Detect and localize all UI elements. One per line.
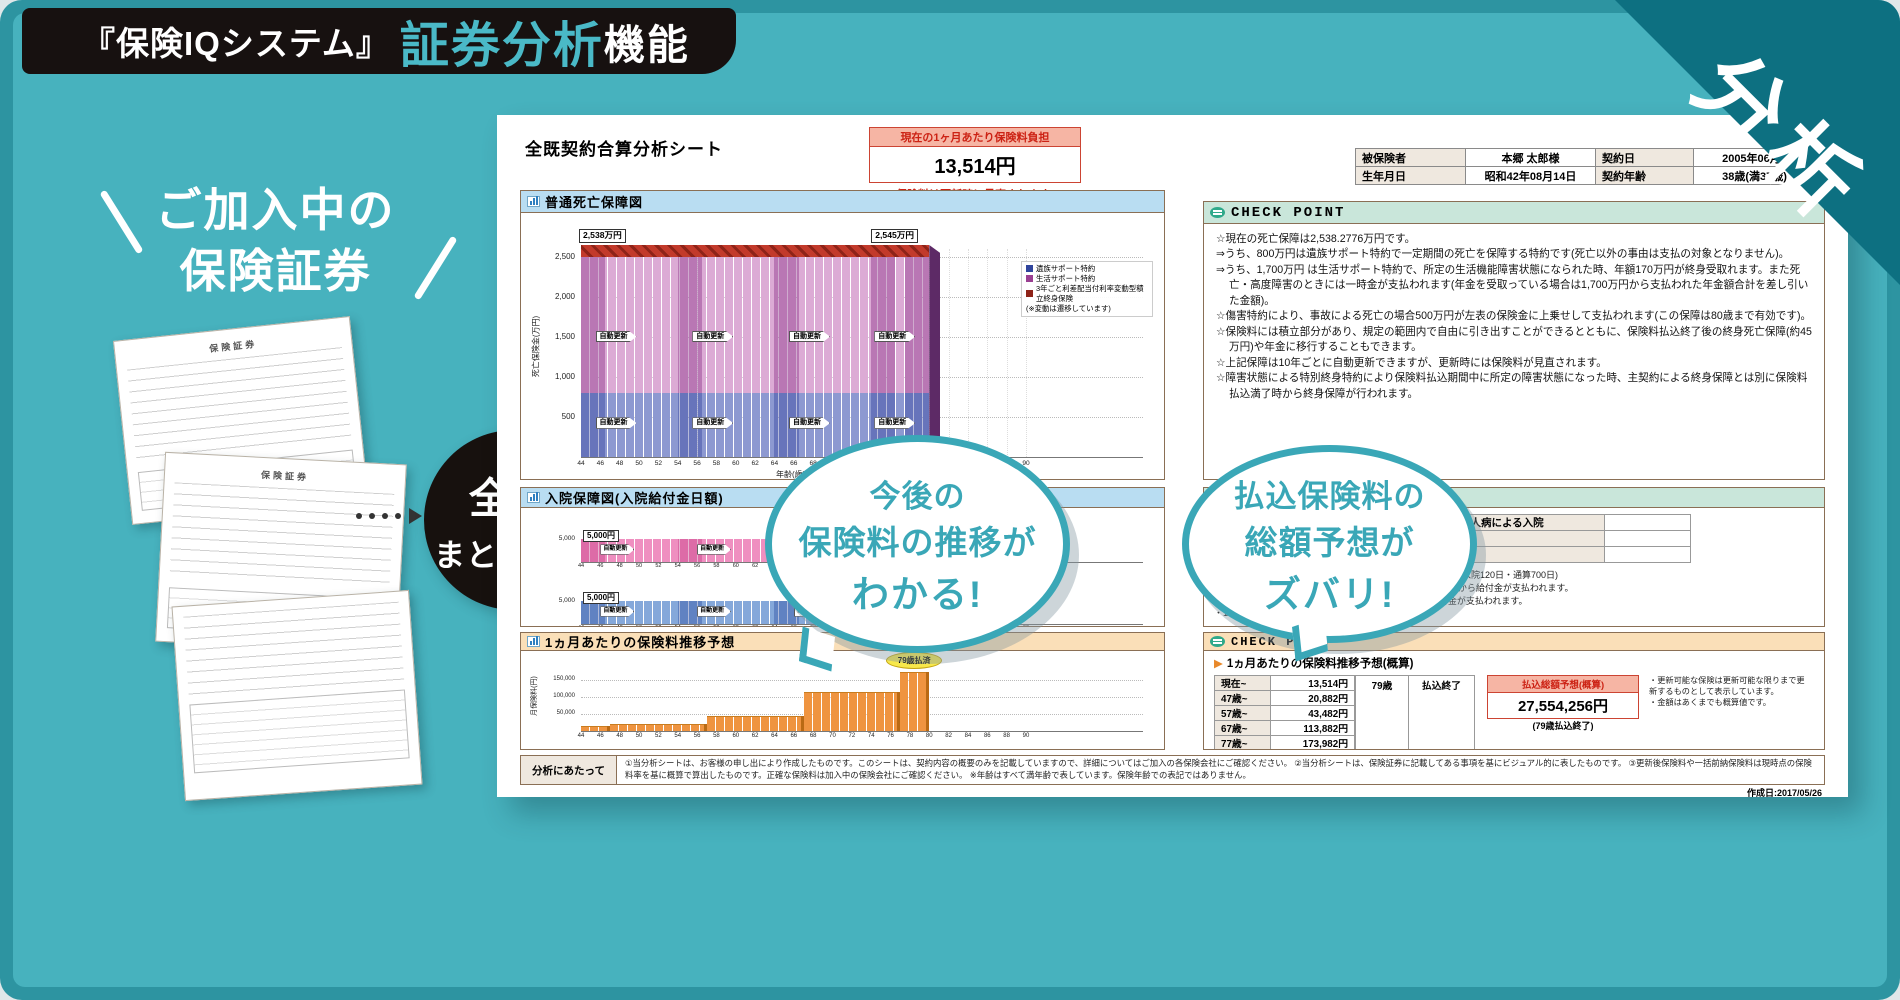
renewal-band-pink: [871, 257, 895, 393]
age-range: 47歳~: [1215, 691, 1271, 706]
premium-value: 113,882円: [1271, 721, 1355, 736]
x-tick-label: 52: [649, 733, 667, 739]
dotted-arrow: [356, 508, 422, 524]
bar-side-face: [929, 245, 940, 445]
legend-entry: 3年ごと利差配当付利率変動型積立終身保険: [1026, 284, 1148, 304]
y-tick-label: 5,000: [537, 597, 575, 604]
premium-step-bar: [804, 692, 901, 731]
x-tick-label: 52: [649, 563, 667, 569]
x-tick-label: 48: [611, 460, 629, 467]
triangle-bullet-icon: ▶: [1214, 658, 1223, 670]
x-tick-label: 46: [591, 460, 609, 467]
policy-paper-3: [171, 590, 422, 801]
speech-bubble-total: 払込保険料の 総額予想が ズバリ!: [1182, 445, 1477, 643]
forecast-note: ・金額はあくまでも概算値です。: [1649, 697, 1807, 708]
death-benefit-chart-header: 普通死亡保障図: [521, 191, 1164, 213]
x-tick-label: 70: [824, 733, 842, 739]
premium-step-bar: [581, 726, 610, 731]
y-axis-title: 死亡保険金(万円): [531, 282, 542, 412]
analysis-disclaimer: 分析にあたって ①当分析シートは、お客様の申し出により作成したものです。このシー…: [520, 755, 1825, 785]
renewal-band-pink: [905, 257, 929, 393]
premium-step-bar: [900, 672, 929, 731]
x-tick-label: 60: [727, 460, 745, 467]
y-axis-title: 月保険料(円): [529, 651, 539, 749]
x-tick-label: 54: [669, 625, 687, 626]
paper-table-block: [189, 689, 409, 773]
sheet-title: 全既契約合算分析シート: [525, 135, 723, 160]
premium-box-value: 13,514円: [869, 147, 1081, 183]
x-tick-label: 54: [669, 460, 687, 467]
x-tick-label: 50: [630, 563, 648, 569]
auto-renewal-arrow: 自動更新: [600, 606, 634, 616]
x-tick-label: 60: [727, 625, 745, 626]
x-tick-label: 52: [649, 625, 667, 626]
auto-renewal-arrow: 自動更新: [789, 331, 830, 342]
y-tick-label: 1,000: [537, 372, 575, 381]
legend-swatch: [1026, 290, 1033, 297]
forecast-notes: ・更新可能な保険は更新可能な限りまで更新するものとして表示しています。 ・金額は…: [1649, 675, 1807, 708]
x-tick-label: 60: [727, 563, 745, 569]
premium-forecast-chart-panel: 1ヵ月あたりの保険料推移予想 50,000100,000150,00044464…: [520, 632, 1165, 750]
paid-up-badge: 79歳払済: [886, 652, 942, 669]
x-tick-label: 50: [630, 625, 648, 626]
bubble-line: 今後の: [870, 471, 966, 516]
x-tick-label: 58: [707, 625, 725, 626]
x-tick-label: 86: [978, 733, 996, 739]
total-payment-box: 払込総額予想(概算) 27,554,256円 (79歳払込終了): [1487, 675, 1639, 732]
x-tick-label: 50: [630, 733, 648, 739]
x-tick-label: 62: [746, 563, 764, 569]
x-tick-label: 64: [765, 460, 783, 467]
end-benefit-label: 2,545万円: [871, 229, 918, 243]
disclaimer-label: 分析にあたって: [521, 756, 617, 784]
arrow-head-icon: [409, 508, 422, 524]
checkpoint-line: ☆障害状態による特別終身特約により保険料払込期間中に所定の障害状態になった時、主…: [1216, 371, 1812, 402]
x-tick-label: 64: [765, 733, 783, 739]
x-tick-label: 46: [591, 625, 609, 626]
age-range: 77歳~: [1215, 736, 1271, 750]
table-row: 現在~13,514円: [1215, 676, 1355, 691]
speech-bubble-trend: 今後の 保険料の推移が わかる!: [765, 435, 1070, 653]
auto-renewal-arrow: 自動更新: [874, 417, 915, 428]
legend-entry: 生活サポート特約: [1026, 274, 1148, 284]
x-tick-label: 48: [611, 733, 629, 739]
x-tick-label: 78: [901, 733, 919, 739]
x-tick-label: 80: [920, 733, 938, 739]
x-tick-label: 56: [688, 563, 706, 569]
payment-end-label-cell: 払込終了: [1409, 675, 1475, 749]
table-row: 67歳~113,882円: [1215, 721, 1355, 736]
x-tick-label: 76: [882, 733, 900, 739]
y-tick-label: 50,000: [537, 710, 575, 716]
checkpoint-line: ☆保険料には積立部分があり、規定の範囲内で自由に引き出すことができるとともに、保…: [1216, 325, 1812, 356]
x-tick-label: 58: [707, 460, 725, 467]
birthdate-value: 昭和42年08月14日: [1466, 167, 1596, 185]
bar-side-face: [926, 672, 929, 731]
bubble-line: ズバリ!: [1264, 564, 1395, 618]
y-gridline: [581, 680, 1143, 681]
x-gridline: [987, 249, 988, 457]
premium-forecast-title: 1ヵ月あたりの保険料推移予想: [545, 632, 735, 651]
paper-content-lines: [169, 482, 394, 591]
age-range: 57歳~: [1215, 706, 1271, 721]
payment-end-age-cell: 79歳: [1355, 675, 1409, 749]
y-tick-label: 5,000: [537, 535, 575, 542]
banner-feature-highlight: 証券分析: [400, 6, 604, 77]
legend-label: 生活サポート特約: [1036, 274, 1095, 284]
auto-renewal-arrow: 自動更新: [697, 606, 731, 616]
forecast-note: ・更新可能な保険は更新可能な限りまで更新するものとして表示しています。: [1649, 675, 1807, 697]
x-tick-label: 56: [688, 460, 706, 467]
x-tick-label: 46: [591, 563, 609, 569]
x-tick-label: 44: [572, 460, 590, 467]
premium-value: 173,982円: [1271, 736, 1355, 750]
headline-line2: 保険証券: [103, 241, 448, 302]
x-gridline: [968, 249, 969, 457]
table-row: 47歳~20,882円: [1215, 691, 1355, 706]
y-tick-label: 2,500: [537, 252, 575, 261]
benefit-value: [1605, 547, 1691, 563]
premium-forecast-plot: 50,000100,000150,00044464850525456586062…: [521, 651, 1164, 749]
insured-name: 本郷 太郎様: [1466, 149, 1596, 167]
x-tick-label: 66: [785, 460, 803, 467]
x-tick-label: 44: [572, 733, 590, 739]
start-benefit-label: 2,538万円: [579, 229, 626, 243]
age-range: 現在~: [1215, 676, 1271, 691]
x-tick-label: 66: [785, 625, 803, 626]
x-tick-label: 48: [611, 563, 629, 569]
x-tick-label: 60: [727, 733, 745, 739]
x-tick-label: 44: [572, 625, 590, 626]
premium-value: 13,514円: [1271, 676, 1355, 691]
bar-chart-icon: [527, 196, 540, 207]
age-range: 67歳~: [1215, 721, 1271, 736]
x-tick-label: 44: [572, 563, 590, 569]
renewal-band-pink: [774, 257, 798, 393]
disclaimer-text: ①当分析シートは、お客様の申し出により作成したものです。このシートは、契約内容の…: [617, 756, 1824, 784]
table-row: 77歳~173,982円: [1215, 736, 1355, 750]
x-tick-label: 66: [785, 733, 803, 739]
x-tick-label: 52: [649, 460, 667, 467]
x-tick-label: 54: [669, 733, 687, 739]
total-payment-sub: (79歳払込終了): [1487, 719, 1639, 732]
legend-label: 遺族サポート特約: [1036, 264, 1095, 274]
x-axis-line: [581, 731, 1143, 732]
x-tick-label: 56: [688, 625, 706, 626]
table-row: 57歳~43,482円: [1215, 706, 1355, 721]
bubble-line: 総額予想が: [1245, 516, 1415, 564]
auto-renewal-arrow: 自動更新: [600, 544, 634, 554]
total-payment-header: 払込総額予想(概算): [1487, 675, 1639, 693]
x-tick-label: 62: [746, 733, 764, 739]
daily-amount-label: 5,000円: [583, 592, 619, 605]
legend-note: (※変動は遷移しています): [1026, 304, 1148, 314]
checkpoint-1-title: CHECK POINT: [1231, 205, 1345, 221]
checkpoint-line: ☆上記保障は10年ごとに自動更新できますが、更新時には保険料が見直されます。: [1216, 356, 1812, 371]
auto-renewal-arrow: 自動更新: [692, 331, 733, 342]
x-gridline: [1007, 249, 1008, 457]
chart-legend: 遺族サポート特約生活サポート特約3年ごと利差配当付利率変動型積立終身保険(※変動…: [1021, 261, 1153, 317]
x-tick-label: 54: [669, 563, 687, 569]
premium-box-header: 現在の1ヶ月あたり保険料負担: [869, 127, 1081, 147]
poster: 分析 『保険IQシステム』 証券分析 機能 ご加入中の 保険証券 保険証券 保険…: [0, 0, 1900, 1000]
bubble-line: 保険料の推移が: [799, 516, 1037, 564]
checkpoint-line: ☆傷害特約により、事故による死亡の場合500万円が左表の保険金に上乗せして支払わ…: [1216, 309, 1812, 324]
premium-schedule-table: 現在~13,514円 47歳~20,882円 57歳~43,482円 67歳~1…: [1214, 675, 1355, 749]
x-tick-label: 62: [746, 625, 764, 626]
legend-entry: 遺族サポート特約: [1026, 264, 1148, 274]
comment-bubble-icon: [1210, 207, 1225, 218]
legend-label: 3年ごと利差配当付利率変動型積立終身保険: [1036, 284, 1148, 304]
daily-amount-label: 5,000円: [583, 530, 619, 543]
x-tick-label: 64: [765, 625, 783, 626]
x-tick-label: 56: [688, 733, 706, 739]
auto-renewal-arrow: 自動更新: [596, 417, 637, 428]
x-tick-label: 48: [611, 625, 629, 626]
legend-swatch: [1026, 275, 1033, 282]
comment-bubble-icon: [1210, 636, 1225, 647]
insured-label: 被保険者: [1356, 149, 1466, 167]
auto-renewal-arrow: 自動更新: [697, 544, 731, 554]
death-benefit-plot: 4446485052545658606264666870727476788082…: [521, 213, 1164, 479]
x-tick-label: 58: [707, 563, 725, 569]
x-tick-label: 46: [591, 733, 609, 739]
x-gridline: [949, 249, 950, 457]
auto-renewal-arrow: 自動更新: [692, 417, 733, 428]
bar-chart-icon: [527, 492, 540, 503]
x-tick-label: 68: [804, 733, 822, 739]
hospitalization-chart-title: 入院保障図(入院給付金日額): [545, 488, 724, 507]
paper-content-lines: [127, 347, 352, 464]
x-tick-label: 74: [862, 733, 880, 739]
birthdate-label: 生年月日: [1356, 167, 1466, 185]
bar-layer-whole-life-cap: [581, 245, 929, 257]
x-tick-label: 88: [998, 733, 1016, 739]
created-date: 作成日:2017/05/26: [1747, 786, 1822, 799]
bar-chart-icon: [527, 636, 540, 647]
death-benefit-chart-panel: 普通死亡保障図 44464850525456586062646668707274…: [520, 190, 1165, 480]
x-tick-label: 84: [959, 733, 977, 739]
x-tick-label: 58: [707, 733, 725, 739]
bubble-line: わかる!: [852, 564, 983, 618]
premium-value: 20,882円: [1271, 691, 1355, 706]
app-title-banner: 『保険IQシステム』 証券分析 機能: [22, 8, 736, 74]
y-tick-label: 1,500: [537, 332, 575, 341]
benefit-value: [1605, 531, 1691, 547]
x-tick-label: 90: [1017, 625, 1035, 626]
paper-content-lines: [183, 602, 404, 696]
x-tick-label: 62: [746, 460, 764, 467]
y-tick-label: 2,000: [537, 292, 575, 301]
bubble-line: 払込保険料の: [1234, 471, 1426, 516]
left-headline: ご加入中の 保険証券: [103, 180, 448, 301]
x-tick-label: 72: [843, 733, 861, 739]
y-tick-label: 500: [537, 412, 575, 421]
banner-system-name: 『保険IQシステム』: [82, 17, 390, 65]
renewal-band-pink: [581, 257, 605, 393]
legend-swatch: [1026, 265, 1033, 272]
headline-line1: ご加入中の: [103, 180, 448, 241]
auto-renewal-arrow: 自動更新: [789, 417, 830, 428]
premium-step-bar: [610, 724, 707, 731]
checkpoint-3-body: ▶1ヵ月あたりの保険料推移予想(概算) 現在~13,514円 47歳~20,88…: [1204, 651, 1824, 749]
auto-renewal-arrow: 自動更新: [874, 331, 915, 342]
death-benefit-chart-title: 普通死亡保障図: [545, 192, 643, 211]
benefit-value: [1605, 515, 1691, 531]
x-tick-label: 50: [630, 460, 648, 467]
banner-feature-suffix: 機能: [604, 11, 690, 71]
x-tick-label: 82: [940, 733, 958, 739]
total-payment-value: 27,554,256円: [1487, 693, 1639, 719]
x-tick-label: 90: [1017, 733, 1035, 739]
renewal-band-pink: [678, 257, 702, 393]
y-tick-label: 150,000: [537, 676, 575, 682]
auto-renewal-arrow: 自動更新: [596, 331, 637, 342]
premium-value: 43,482円: [1271, 706, 1355, 721]
y-tick-label: 100,000: [537, 693, 575, 699]
premium-step-bar: [707, 716, 804, 731]
